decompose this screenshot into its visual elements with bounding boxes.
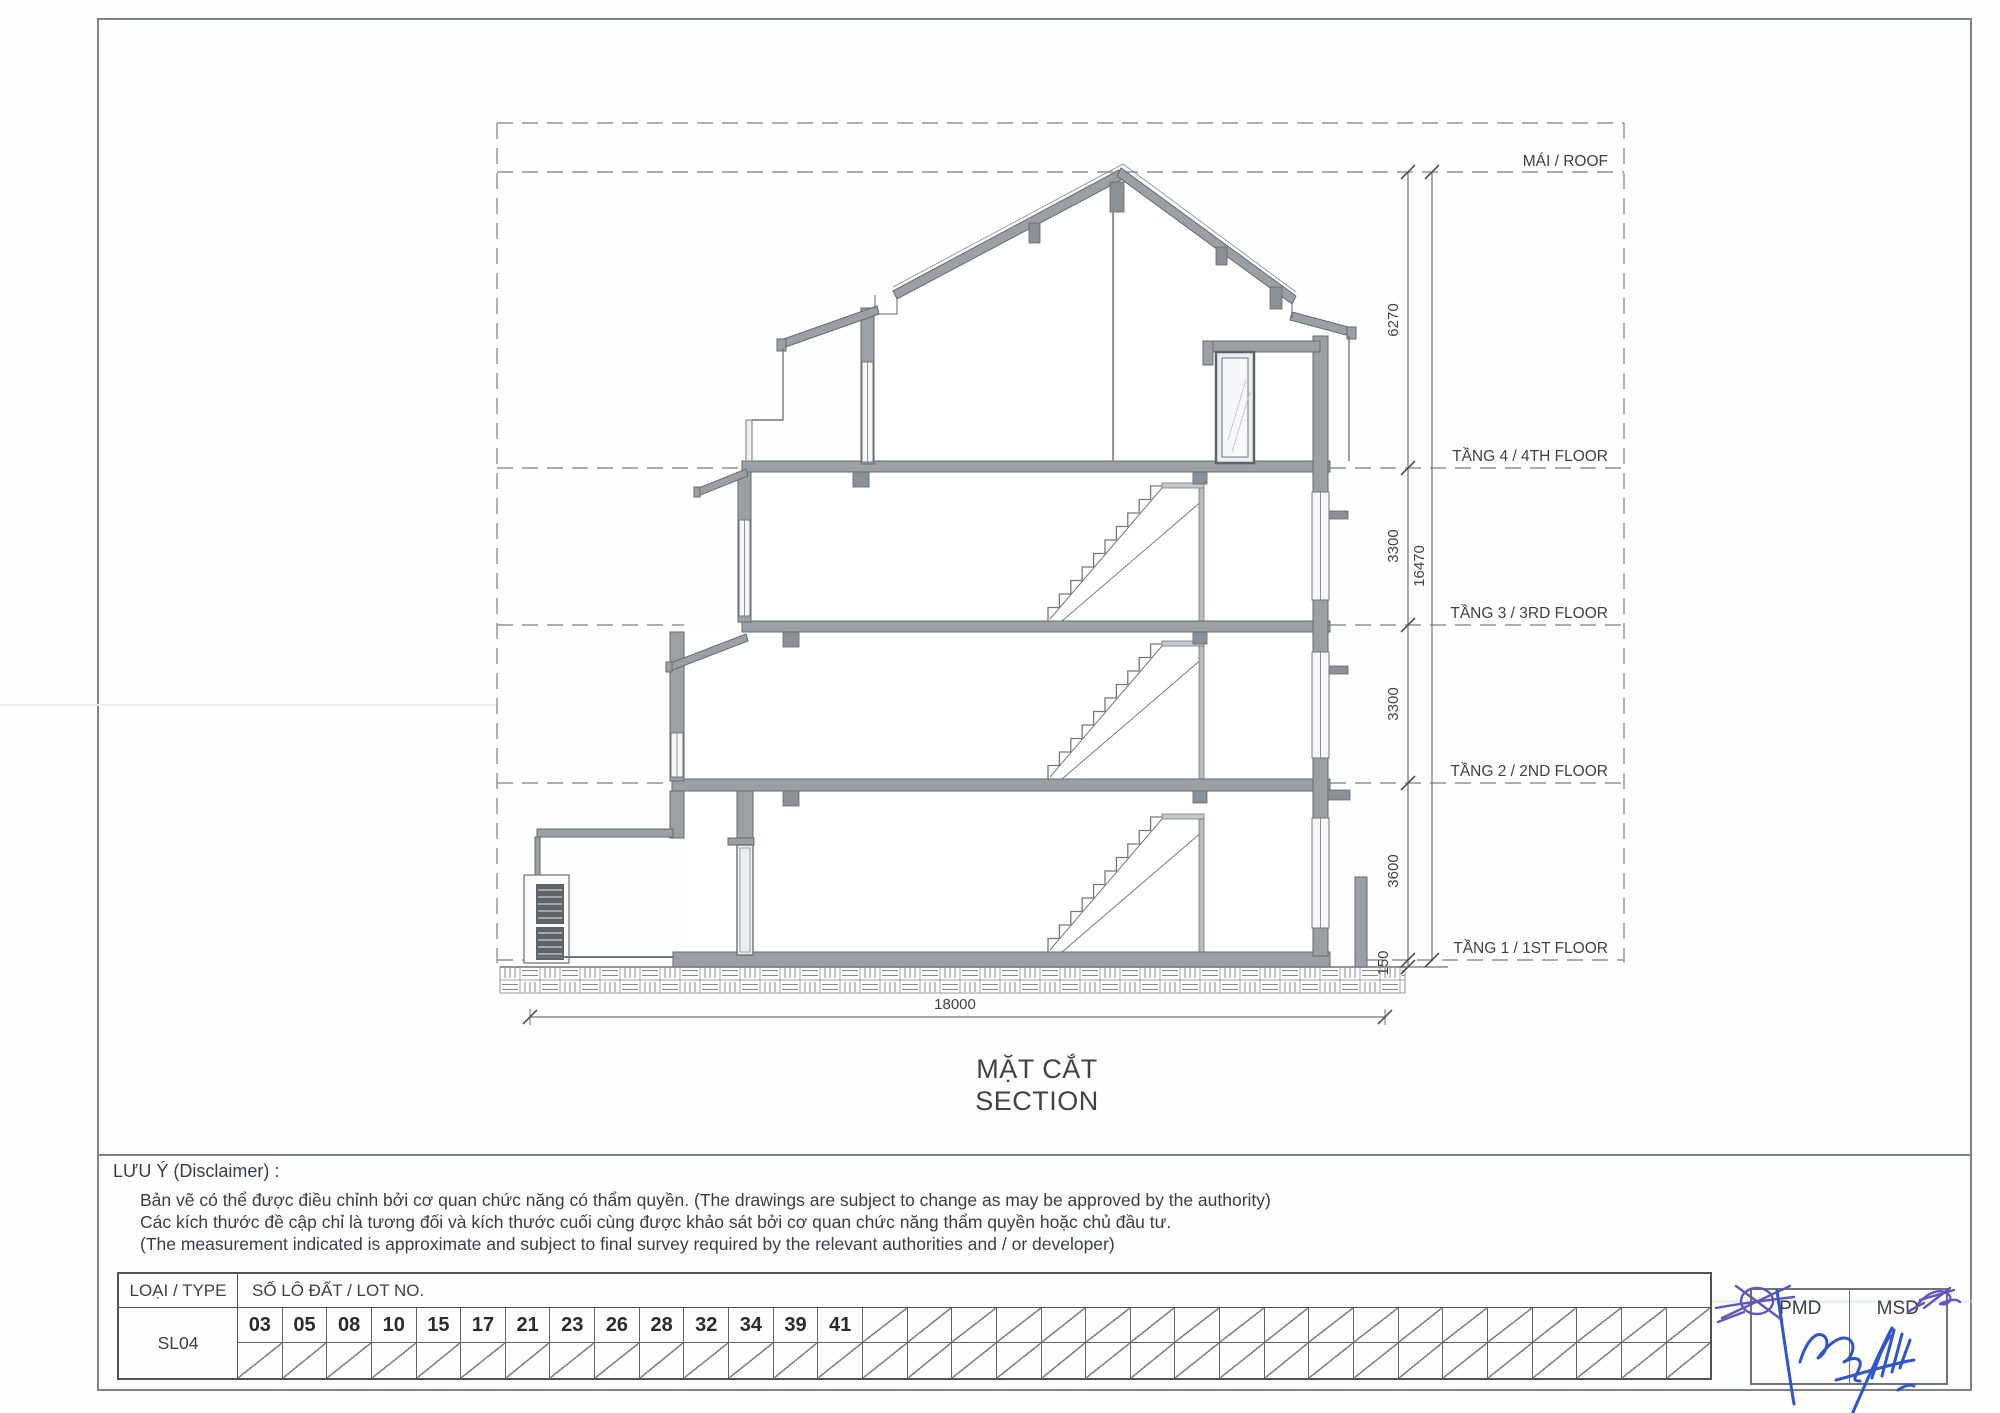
lot-cell: 08: [327, 1308, 372, 1378]
lot-cell: 28: [640, 1308, 685, 1378]
empty-lot-cell: [1086, 1308, 1131, 1378]
empty-lot-cell: [997, 1308, 1042, 1378]
empty-lot-cell: [863, 1308, 908, 1378]
empty-lot-cell: [1443, 1308, 1488, 1378]
empty-lot-cell: [1399, 1308, 1444, 1378]
empty-lot-cell: [1354, 1308, 1399, 1378]
disclaimer-line: Bản vẽ có thể được điều chỉnh bởi cơ qua…: [113, 1189, 1271, 1211]
empty-lot-cell: [1622, 1308, 1667, 1378]
empty-lot-cell: [1175, 1308, 1220, 1378]
section-divider-line: [97, 1154, 1972, 1156]
drawing-sheet: LƯU Ý (Disclaimer) : Bản vẽ có thể được …: [0, 0, 2000, 1413]
lot-cell: 17: [461, 1308, 506, 1378]
empty-lot-cell: [1577, 1308, 1622, 1378]
lot-cell: 23: [550, 1308, 595, 1378]
lot-table-body: SL04 03 05 08 10 15 17 21 23 26 28 32 34…: [119, 1308, 1710, 1378]
type-value-cell: SL04: [119, 1308, 238, 1378]
empty-lot-cell: [1131, 1308, 1176, 1378]
empty-lot-cell: [1533, 1308, 1578, 1378]
lot-cell: 32: [684, 1308, 729, 1378]
empty-lot-cell: [908, 1308, 953, 1378]
empty-lot-cell: [1265, 1308, 1310, 1378]
empty-lot-cell: [952, 1308, 997, 1378]
approval-box: PMD MSD: [1750, 1288, 1948, 1385]
approval-cell-msd: MSD: [1850, 1290, 1947, 1383]
disclaimer-line: (The measurement indicated is approximat…: [113, 1233, 1271, 1255]
lot-table-header-row: LOẠI / TYPE SỐ LÔ ĐẤT / LOT NO.: [119, 1274, 1710, 1308]
lot-table: LOẠI / TYPE SỐ LÔ ĐẤT / LOT NO. SL04 03 …: [117, 1272, 1712, 1380]
lot-cell: 26: [595, 1308, 640, 1378]
lot-cell: 03: [238, 1308, 283, 1378]
lot-cell: 41: [818, 1308, 863, 1378]
disclaimer-heading: LƯU Ý (Disclaimer) :: [113, 1160, 1271, 1182]
disclaimer-block: LƯU Ý (Disclaimer) : Bản vẽ có thể được …: [113, 1160, 1271, 1255]
lot-cell: 21: [506, 1308, 551, 1378]
lot-cell: 39: [774, 1308, 819, 1378]
lot-cell: 05: [283, 1308, 328, 1378]
lot-cells: 03 05 08 10 15 17 21 23 26 28 32 34 39 4…: [238, 1308, 1710, 1378]
empty-lot-cell: [1220, 1308, 1265, 1378]
lot-header-cell: SỐ LÔ ĐẤT / LOT NO.: [238, 1274, 1710, 1307]
empty-lot-cell: [1488, 1308, 1533, 1378]
lot-cell: 34: [729, 1308, 774, 1378]
disclaimer-line: Các kích thước đề cập chỉ là tương đối v…: [113, 1211, 1271, 1233]
empty-lot-cell: [1309, 1308, 1354, 1378]
empty-lot-cell: [1667, 1308, 1711, 1378]
lot-cell: 10: [372, 1308, 417, 1378]
type-header-cell: LOẠI / TYPE: [119, 1274, 238, 1307]
approval-cell-pmd: PMD: [1752, 1290, 1850, 1383]
empty-lot-cell: [1042, 1308, 1087, 1378]
lot-cell: 15: [417, 1308, 462, 1378]
